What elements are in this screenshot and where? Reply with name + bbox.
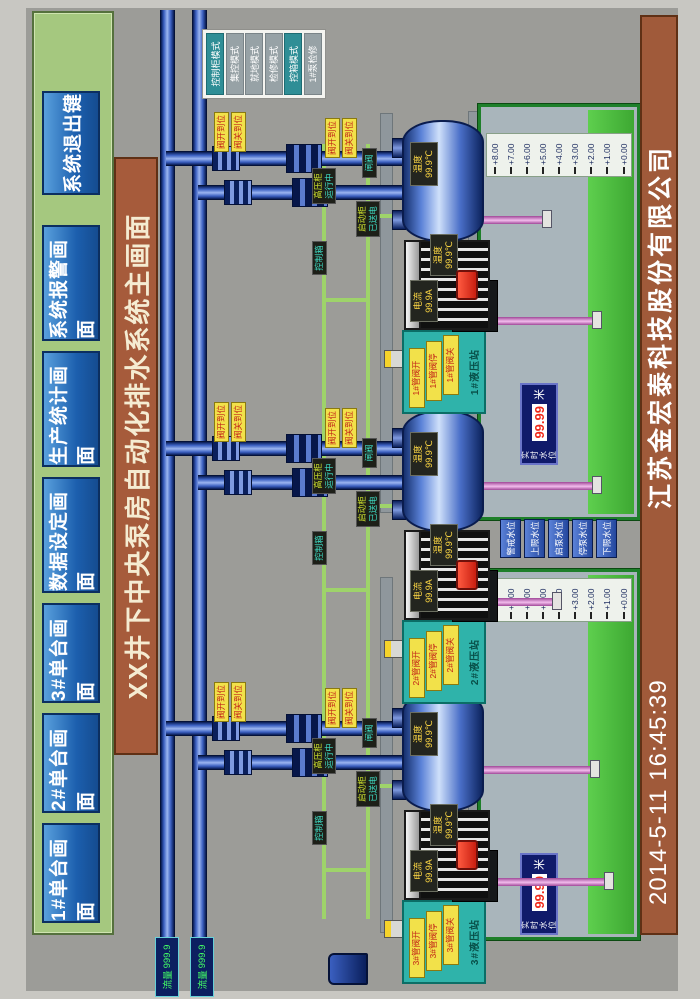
frame-right [0, 0, 700, 8]
pump-temp-label: 温度99.9℃ [410, 432, 438, 476]
mode-button[interactable]: 集控模式 [226, 33, 244, 95]
motor-current-label: 电流99.9A [410, 570, 438, 612]
pump-unit-1: 阀开到位阀关到位 阀开到位阀关到位 闸阀 高压柜运行中 启动柜已送电 控制箱 1… [0, 102, 640, 414]
cabinet-tag: 控制箱 [312, 241, 327, 275]
hydraulic-valve-button[interactable]: 3#管阀停 [426, 911, 442, 971]
pump-unit-3: 阀开到位阀关到位 阀开到位阀关到位 闸阀 高压柜运行中 启动柜已送电 控制箱 3… [0, 672, 640, 984]
cabinet-status-tag: 高压柜运行中 [312, 168, 336, 204]
limit-indicator-tag: 阀关到位 [231, 112, 246, 152]
hydraulic-station-panel: 1#管阀开1#管阀停1#管阀关 1#液压站 [402, 330, 486, 414]
mode-panel: 控制柜模式集控模式就地模式检修模式控箱模式1#泵检修 [202, 29, 326, 99]
frame-bottom [678, 0, 700, 999]
hydraulic-station-panel: 2#管阀开2#管阀停2#管阀关 2#液压站 [402, 620, 486, 704]
frame-left [0, 991, 700, 999]
valve-tag: 闸阀 [362, 148, 377, 178]
aux-pump-graphic [328, 953, 368, 985]
hydraulic-valve-button[interactable]: 2#管阀停 [426, 631, 442, 691]
mode-button[interactable]: 就地模式 [245, 33, 263, 95]
motor-current-label: 电流99.9A [410, 850, 438, 892]
cabinet-status-tag: 高压柜运行中 [312, 458, 336, 494]
hydraulic-station-title: 3#液压站 [466, 902, 481, 982]
power-drop [322, 868, 366, 872]
hydraulic-station-panel: 3#管阀开3#管阀停3#管阀关 3#液压站 [402, 900, 486, 984]
cabinet-status-tag: 启动柜已送电 [356, 201, 380, 237]
pipe-flange [224, 180, 252, 205]
cabinet-tag: 控制箱 [312, 531, 327, 565]
cabinet-tag: 控制箱 [312, 811, 327, 845]
mode-button[interactable]: 检修模式 [265, 33, 283, 95]
hydraulic-valve-button[interactable]: 3#管阀关 [443, 905, 459, 965]
emergency-indicator [456, 270, 478, 300]
pump-temp-label: 温度99.9℃ [410, 712, 438, 756]
hydraulic-valve-button[interactable]: 1#管阀停 [426, 341, 442, 401]
valve-tag: 闸阀 [362, 438, 377, 468]
mode-button[interactable]: 1#泵检修 [304, 33, 322, 95]
limit-indicator-tag: 阀开到位 [325, 118, 340, 158]
motor-temp-label: 温度99.9℃ [430, 804, 458, 846]
hydraulic-valve-button[interactable]: 2#管阀开 [409, 638, 425, 698]
company-name: 江苏金宏泰科技股份有限公司 [641, 45, 677, 509]
limit-indicator-tag: 阀关到位 [342, 118, 357, 158]
mode-button[interactable]: 控箱模式 [284, 33, 302, 95]
valve-tag: 闸阀 [362, 718, 377, 748]
emergency-indicator [456, 840, 478, 870]
mode-button[interactable]: 控制柜模式 [206, 33, 224, 95]
hydraulic-valve-button[interactable]: 2#管阀关 [443, 625, 459, 685]
cabinet-status-tag: 启动柜已送电 [356, 771, 380, 807]
valve-limit-tags: 阀开到位阀关到位 [325, 408, 359, 448]
valve-limit-tags: 阀开到位阀关到位 [214, 112, 248, 152]
footer-bar: 2014-5-11 16:45:39 江苏金宏泰科技股份有限公司 [640, 15, 678, 935]
motor-temp-label: 温度99.9℃ [430, 524, 458, 566]
power-drop [322, 298, 366, 302]
hydraulic-valve-button[interactable]: 1#管阀关 [443, 335, 459, 395]
limit-indicator-tag: 阀开到位 [214, 112, 229, 152]
pump-unit-2: 阀开到位阀关到位 阀开到位阀关到位 闸阀 高压柜运行中 启动柜已送电 控制箱 2… [0, 392, 640, 704]
hmi-screen: 1#单台画面2#单台画面3#单台画面数据设定画面生产统计画面系统报警画面系统退出… [0, 0, 700, 999]
motor-current-label: 电流99.9A [410, 280, 438, 322]
cabinet-status-tag: 高压柜运行中 [312, 738, 336, 774]
emergency-indicator [456, 560, 478, 590]
valve-limit-tags: 阀开到位阀关到位 [325, 118, 359, 158]
pipe-flange [224, 750, 252, 775]
screenshot-viewport: 1#单台画面2#单台画面3#单台画面数据设定画面生产统计画面系统报警画面系统退出… [0, 0, 700, 999]
pipe-flange [224, 470, 252, 495]
limit-indicator-tag: 阀关到位 [342, 408, 357, 448]
limit-indicator-tag: 阀开到位 [325, 408, 340, 448]
pump-temp-label: 温度99.9℃ [410, 142, 438, 186]
hydraulic-station-title: 2#液压站 [466, 622, 481, 702]
cabinet-status-tag: 启动柜已送电 [356, 491, 380, 527]
hydraulic-valve-button[interactable]: 3#管阀开 [409, 918, 425, 978]
datetime: 2014-5-11 16:45:39 [645, 679, 673, 905]
power-drop [322, 588, 366, 592]
hydraulic-valve-button[interactable]: 1#管阀开 [409, 348, 425, 408]
motor-temp-label: 温度99.9℃ [430, 234, 458, 276]
hydraulic-station-title: 1#液压站 [466, 332, 481, 412]
